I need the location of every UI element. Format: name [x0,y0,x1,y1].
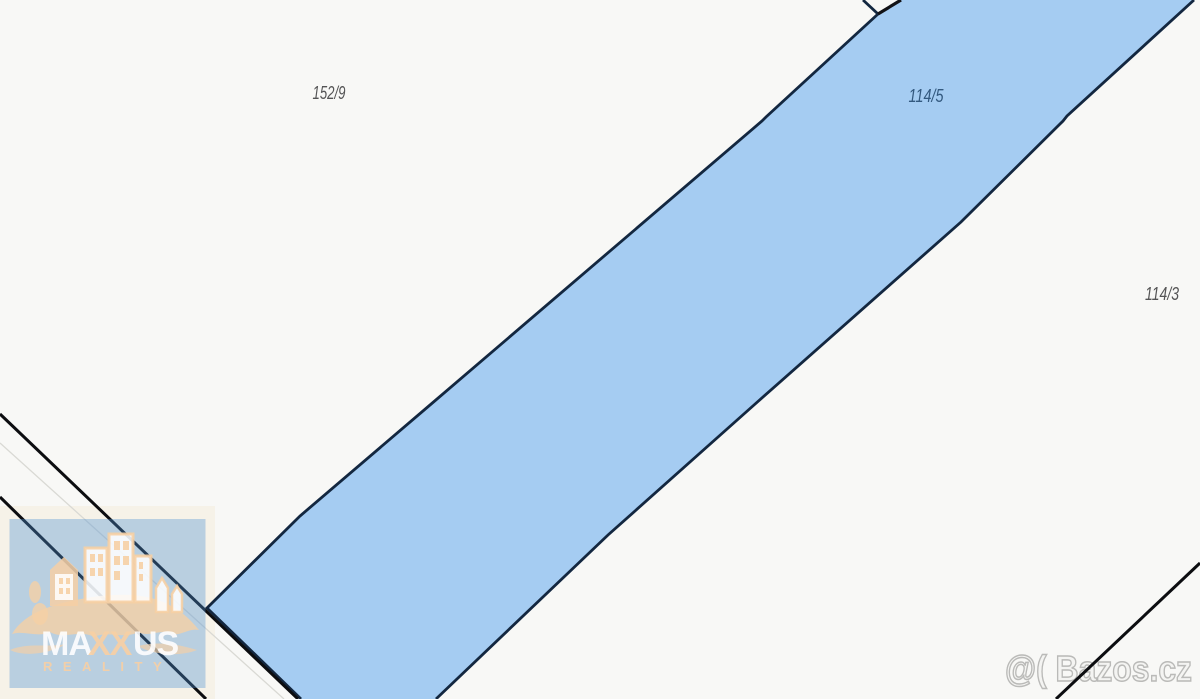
svg-text:114/3: 114/3 [1145,284,1179,304]
svg-text:114/5: 114/5 [909,86,945,106]
svg-text:XX: XX [88,625,133,663]
svg-text:@( Bazos.cz: @( Bazos.cz [1005,648,1192,689]
svg-text:MA: MA [41,625,92,663]
svg-text:US: US [133,625,179,663]
svg-text:REALITY: REALITY [43,659,172,674]
svg-text:152/9: 152/9 [313,83,346,103]
